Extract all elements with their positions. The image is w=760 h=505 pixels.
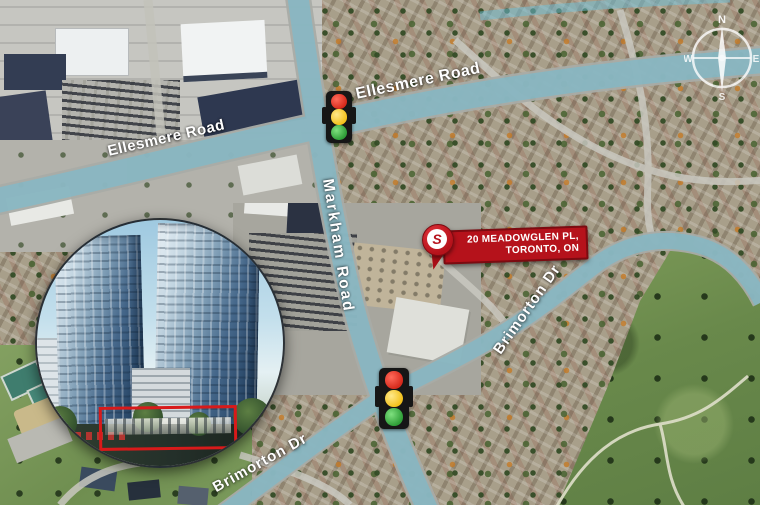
yellow-light: [385, 390, 402, 407]
aerial-map: Ellesmere Road Ellesmere Road Markham Ro…: [0, 0, 760, 505]
green-light: [331, 125, 346, 140]
tree: [43, 406, 77, 440]
traffic-light-icon: [326, 91, 352, 143]
compass-south-label: S: [719, 92, 726, 100]
yellow-light: [331, 109, 346, 124]
retail-podium-highlight-box: [99, 405, 238, 451]
address-banner: 20 MEADOWGLEN PL, TORONTO, ON: [442, 225, 588, 264]
compass-north-label: N: [718, 14, 726, 26]
tree: [233, 398, 271, 436]
compass-west-label: W: [684, 54, 693, 65]
location-pin-icon: S: [420, 224, 454, 274]
retail-strip: [105, 417, 231, 435]
property-rendering-inset: [35, 218, 285, 468]
green-light: [385, 408, 402, 425]
red-light: [331, 94, 346, 109]
park-trail: [556, 376, 748, 505]
compass-icon: N E S W: [684, 12, 760, 100]
traffic-light-icon: [379, 368, 409, 429]
brand-logo-letter: S: [427, 229, 447, 249]
compass-east-label: E: [753, 54, 760, 65]
red-light: [385, 371, 402, 388]
